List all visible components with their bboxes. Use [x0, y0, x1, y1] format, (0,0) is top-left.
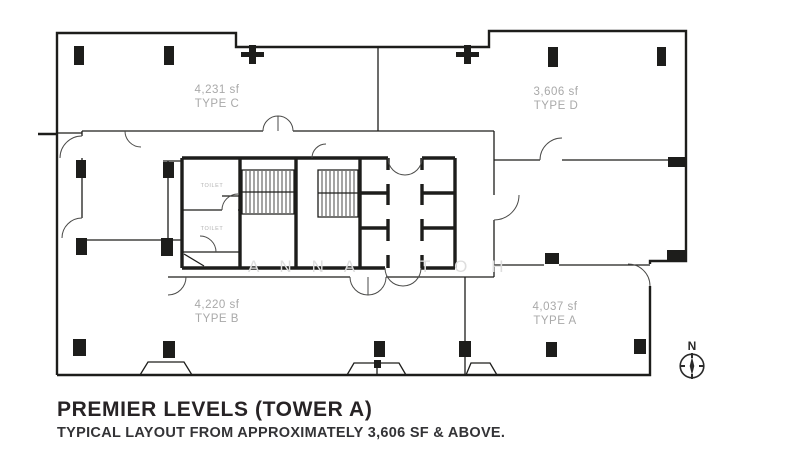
column — [163, 341, 175, 358]
column — [456, 52, 479, 57]
building-outline — [38, 31, 686, 375]
balcony-notches — [140, 360, 497, 375]
column — [74, 46, 84, 65]
toilet-lower-label: TOILET — [201, 226, 224, 232]
title-block: PREMIER LEVELS (TOWER A) TYPICAL LAYOUT … — [57, 398, 505, 441]
column — [668, 157, 687, 167]
column — [76, 238, 87, 255]
interior-walls — [57, 47, 687, 375]
door-west-corridor — [125, 131, 141, 147]
north-compass-icon: N — [680, 339, 704, 379]
page-subtitle: TYPICAL LAYOUT FROM APPROXIMATELY 3,606 … — [57, 425, 505, 441]
unit-type-c-area: 4,231 sf — [195, 84, 240, 96]
unit-type-a-area: 4,037 sf — [533, 301, 578, 313]
column — [76, 160, 86, 178]
balcony-center-key — [374, 360, 381, 368]
watermark-part2: TOH — [420, 257, 528, 276]
compass-north-label: N — [688, 339, 697, 353]
toilet-vestibule-leaf — [184, 254, 204, 266]
balcony-notch-left — [140, 362, 192, 375]
toilet-upper-label: TOILET — [201, 183, 224, 189]
column — [657, 47, 666, 66]
unit-type-d-area: 3,606 sf — [534, 86, 579, 98]
column — [634, 339, 646, 354]
column — [241, 52, 264, 57]
door-service-band-lower — [62, 218, 82, 238]
door-type-d — [540, 138, 562, 160]
toilet-walls — [182, 196, 240, 252]
door-east-corridor — [494, 195, 519, 220]
column — [161, 238, 173, 256]
door-type-a — [628, 264, 650, 286]
double-door-lobby-top — [388, 158, 422, 175]
unit-type-d-name: TYPE D — [534, 100, 579, 112]
column — [73, 339, 86, 356]
door-service-band-upper — [60, 136, 82, 158]
column — [667, 250, 687, 262]
page-title: PREMIER LEVELS (TOWER A) — [57, 398, 372, 421]
compass-needle — [690, 357, 695, 375]
column — [546, 342, 557, 357]
column — [164, 46, 174, 65]
unit-type-a-name: TYPE A — [533, 315, 576, 327]
column — [548, 47, 558, 67]
unit-type-b-area: 4,220 sf — [195, 299, 240, 311]
column — [459, 341, 471, 357]
double-door-corridor-bottom — [350, 277, 386, 295]
perimeter-wall — [57, 31, 686, 375]
door-core-top — [312, 144, 326, 158]
balcony-notch-right — [466, 363, 497, 375]
unit-type-c-name: TYPE C — [195, 98, 240, 110]
watermark-part1: ANNA — [248, 257, 375, 276]
column — [163, 162, 174, 178]
unit-labels: 4,231 sf TYPE C 3,606 sf TYPE D 4,220 sf… — [195, 84, 579, 327]
door-toilet-lower — [200, 236, 216, 252]
service-core: TOILET TOILET — [182, 158, 455, 268]
door-type-b — [168, 277, 186, 295]
floor-plan-canvas: TOILET TOILET — [0, 0, 800, 465]
column — [545, 253, 559, 264]
column — [374, 341, 385, 357]
floor-plan-page: TOILET TOILET — [0, 0, 800, 465]
double-door-corridor-top — [263, 116, 293, 131]
unit-type-b-name: TYPE B — [195, 313, 239, 325]
left-service-wall — [57, 131, 82, 240]
structural-columns — [73, 45, 687, 358]
